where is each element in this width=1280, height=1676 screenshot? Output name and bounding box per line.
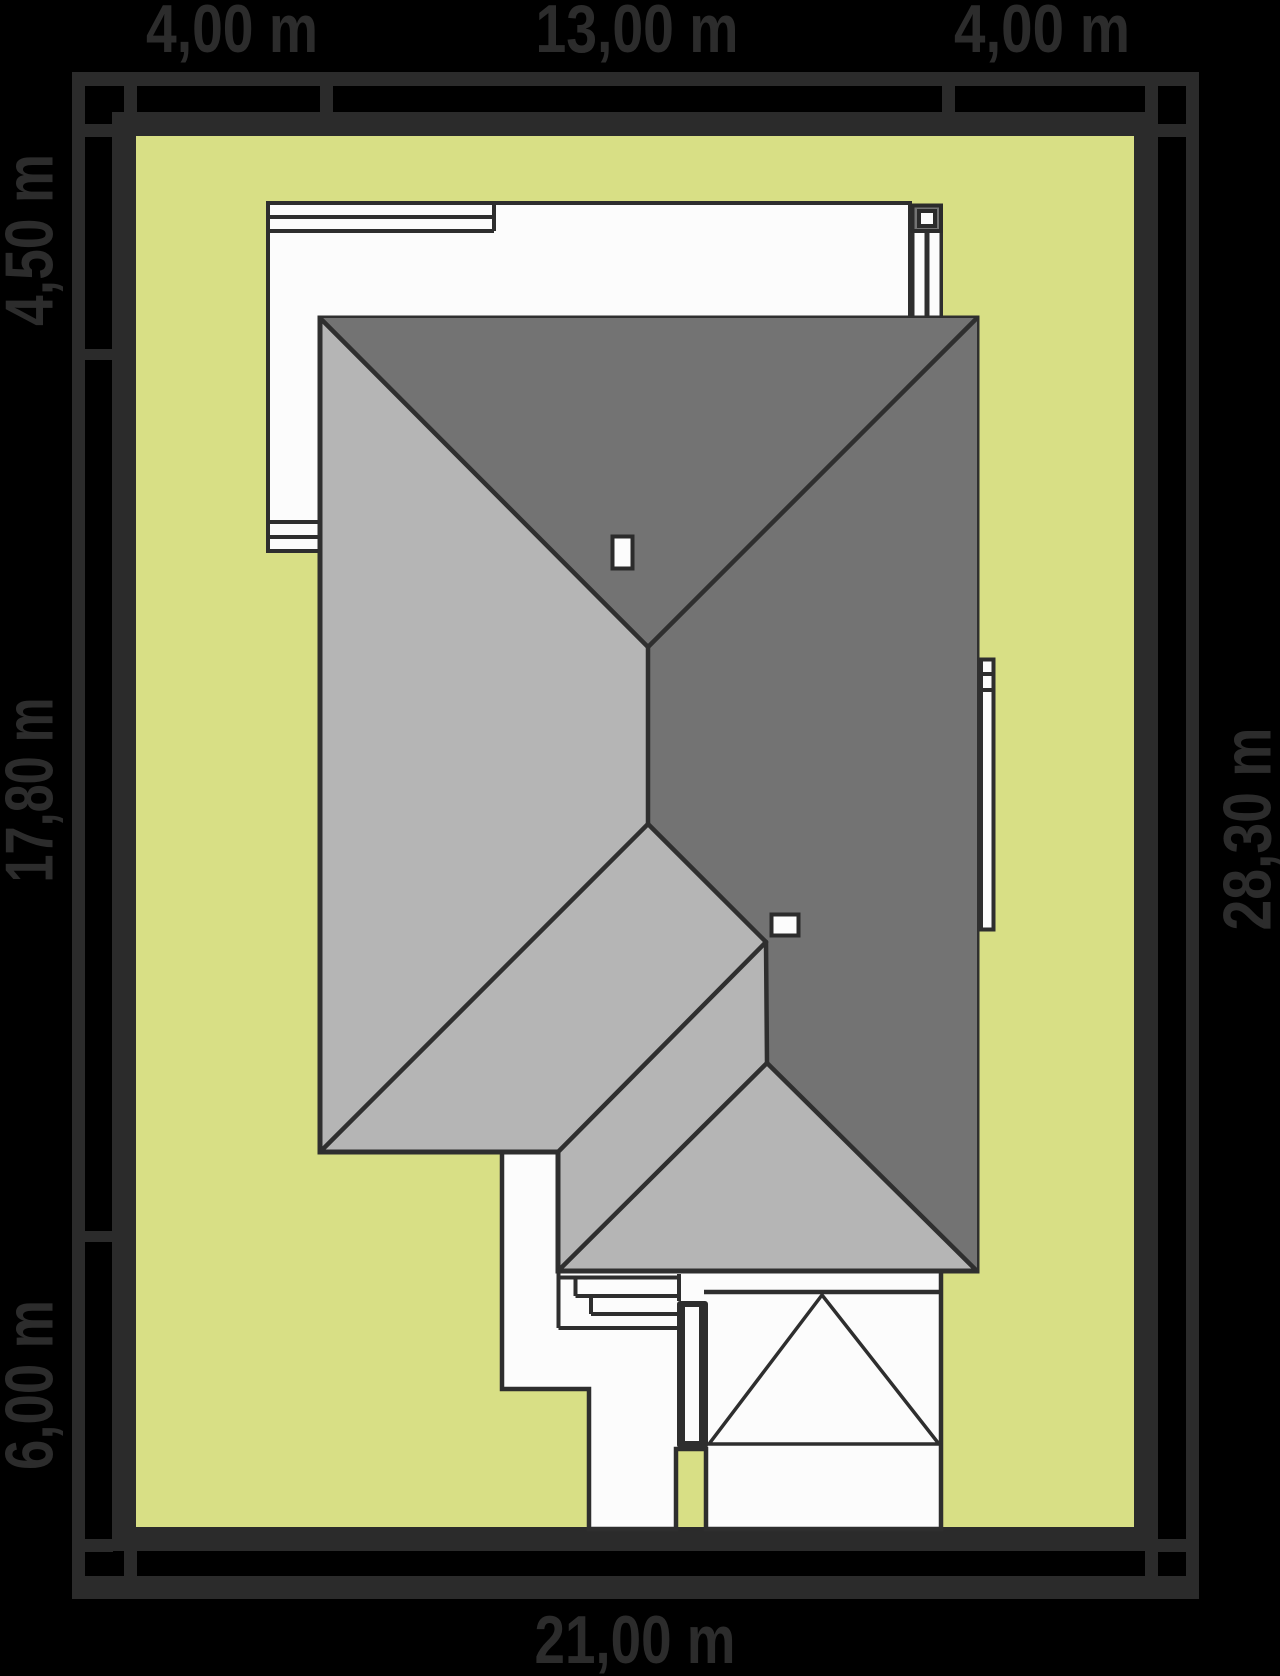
svg-text:21,00 m: 21,00 m (535, 1602, 736, 1676)
svg-text:4,00 m: 4,00 m (954, 0, 1130, 67)
svg-text:17,80 m: 17,80 m (0, 698, 68, 883)
svg-text:6,00 m: 6,00 m (0, 1300, 68, 1470)
svg-text:4,50 m: 4,50 m (0, 154, 68, 326)
svg-text:28,30 m: 28,30 m (1210, 728, 1280, 931)
svg-text:13,00 m: 13,00 m (536, 0, 739, 67)
svg-text:4,00 m: 4,00 m (146, 0, 318, 67)
